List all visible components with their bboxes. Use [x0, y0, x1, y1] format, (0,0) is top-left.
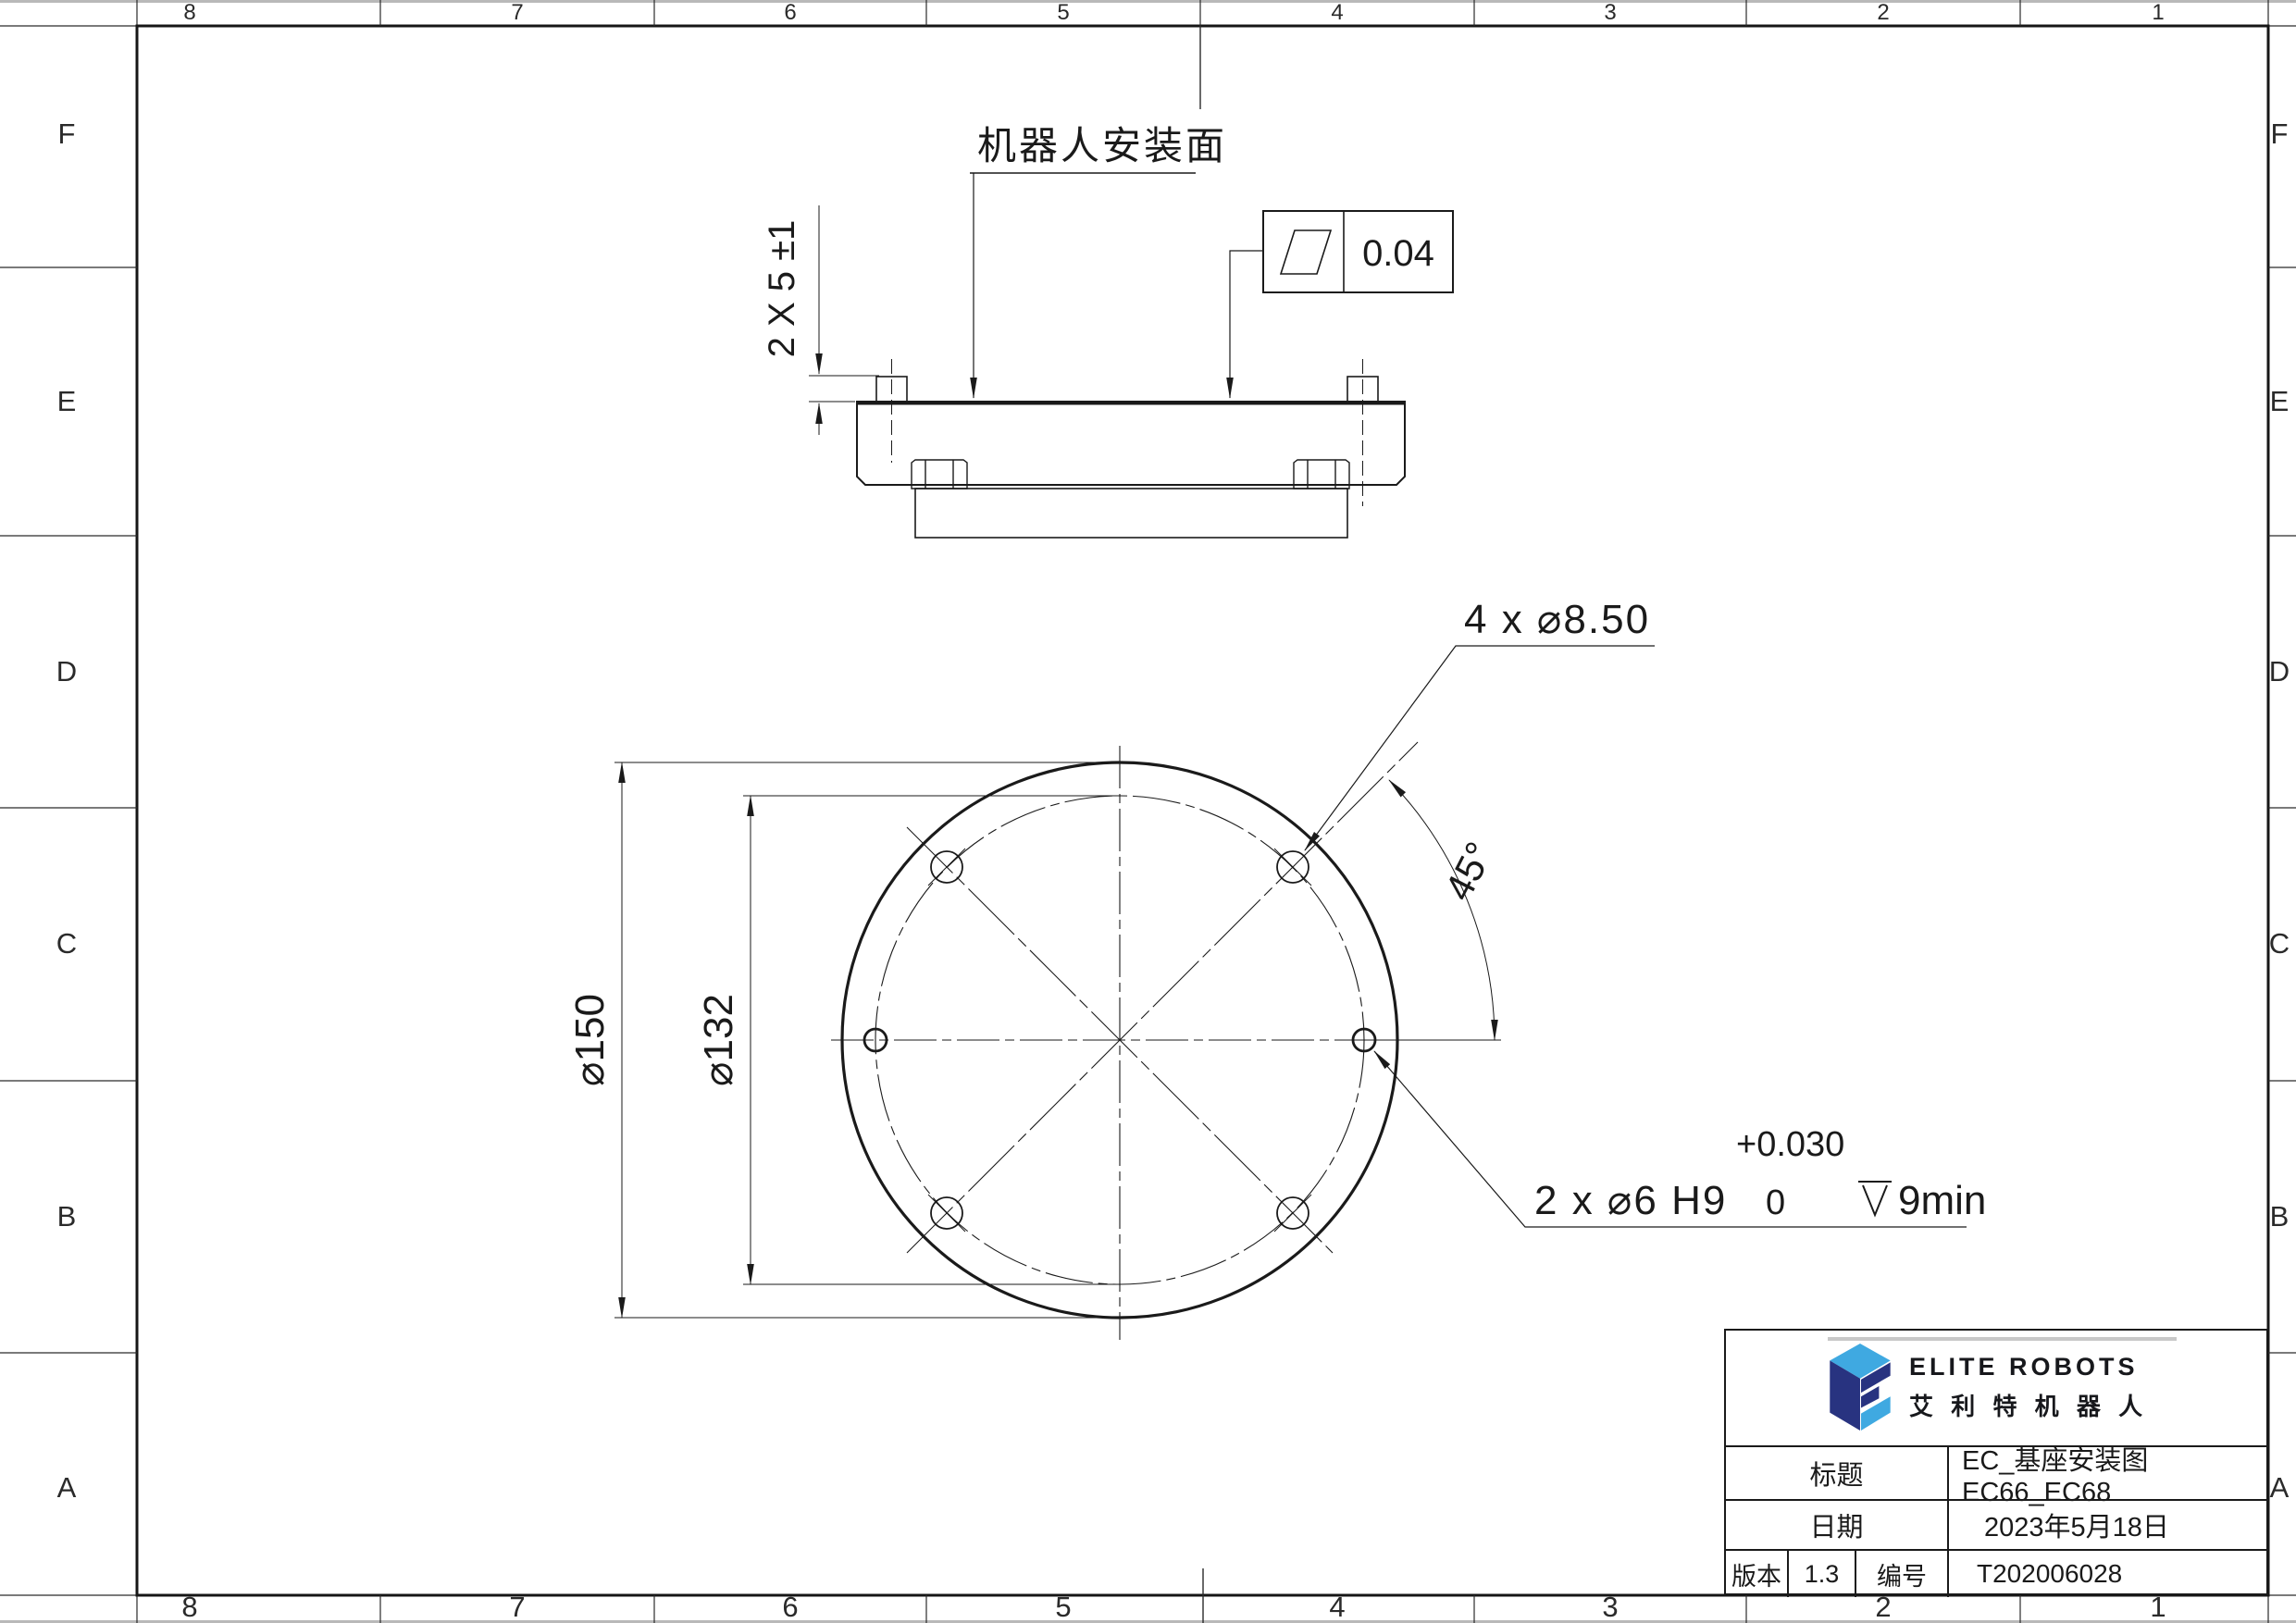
bolt-hole-callout: 4 x ⌀8.50 — [1305, 597, 1655, 850]
zone-letter-left-C: C — [56, 927, 77, 960]
zone-letter-left-E: E — [57, 385, 77, 418]
plan-view — [831, 742, 1430, 1340]
zone-number-top-6: 6 — [784, 0, 796, 26]
zone-number-bottom-4: 4 — [1329, 1591, 1345, 1623]
zone-letter-right-C: C — [2269, 927, 2290, 960]
title-label: 标题 — [1726, 1447, 1947, 1499]
bolt-circle-text: ⌀132 — [696, 994, 741, 1086]
mounting-surface-callout: 机器人安装面 — [970, 124, 1227, 398]
zone-number-bottom-7: 7 — [509, 1591, 525, 1623]
zone-dividers-left — [0, 267, 137, 1353]
title-row: 标题 EC_基座安装图 EC66_EC68 — [1726, 1445, 2266, 1499]
zone-letter-right-A: A — [2270, 1471, 2290, 1505]
pin-height-text: 2 X 5 ±1 — [762, 220, 802, 358]
title-block-logo-cell: ELITE ROBOTS 艾 利 特 机 器 人 — [1726, 1331, 2266, 1445]
dowel-hole-text: 2 x ⌀6 H9 — [1534, 1178, 1727, 1223]
zone-number-bottom-8: 8 — [181, 1591, 197, 1623]
zone-dividers-bottom — [380, 1595, 2020, 1623]
flatness-value: 0.04 — [1362, 233, 1434, 274]
zone-number-top-7: 7 — [511, 0, 523, 26]
zone-number-bottom-5: 5 — [1055, 1591, 1071, 1623]
number-label: 编号 — [1855, 1551, 1947, 1597]
zone-number-top-8: 8 — [183, 0, 195, 26]
depth-icon — [1858, 1182, 1892, 1215]
zone-letter-right-D: D — [2269, 655, 2290, 688]
mounting-surface-label: 机器人安装面 — [977, 124, 1227, 167]
elite-robots-logo-icon — [1830, 1344, 1893, 1431]
flatness-symbol — [1281, 230, 1331, 274]
zone-number-bottom-3: 3 — [1602, 1591, 1618, 1623]
dowel-tol-lower: 0 — [1766, 1183, 1785, 1222]
zone-letter-right-B: B — [2270, 1200, 2290, 1233]
dowel-hole-callout: 2 x ⌀6 H9 +0.030 0 9min — [1374, 1051, 1986, 1227]
dowel-tol-upper: +0.030 — [1736, 1125, 1844, 1164]
number-value: T202006028 — [1947, 1551, 2270, 1597]
dowel-depth-text: 9min — [1898, 1178, 1986, 1223]
centerline-diag-ne — [907, 742, 1418, 1253]
pedestal — [915, 489, 1347, 538]
zone-letter-right-F: F — [2271, 118, 2289, 151]
title-block: ELITE ROBOTS 艾 利 特 机 器 人 标题 EC_基座安装图 EC6… — [1724, 1329, 2268, 1595]
side-view — [857, 359, 1405, 538]
zone-number-top-3: 3 — [1604, 0, 1616, 26]
zone-dividers-right — [2268, 267, 2296, 1353]
zone-number-top-4: 4 — [1331, 0, 1343, 26]
zone-number-top-2: 2 — [1877, 0, 1889, 26]
date-label: 日期 — [1726, 1501, 1947, 1549]
version-row: 版本 1.3 编号 T202006028 — [1726, 1549, 2266, 1597]
date-value: 2023年5月18日 — [1947, 1501, 2270, 1549]
version-label: 版本 — [1726, 1551, 1787, 1597]
zone-letter-left-A: A — [57, 1471, 77, 1505]
pin-height-dimension: 2 X 5 ±1 — [762, 205, 879, 435]
title-value: EC_基座安装图 EC66_EC68 — [1947, 1447, 2270, 1499]
zone-number-top-5: 5 — [1057, 0, 1069, 26]
zone-number-top-1: 1 — [2152, 0, 2164, 26]
zone-dividers-top — [380, 0, 2020, 26]
zone-letter-left-F: F — [58, 118, 76, 151]
zone-letter-right-E: E — [2270, 385, 2290, 418]
brand-name-en: ELITE ROBOTS — [1909, 1353, 2148, 1381]
version-value: 1.3 — [1787, 1551, 1855, 1597]
zone-letter-left-B: B — [57, 1200, 77, 1233]
logo-accent-line — [1828, 1337, 2177, 1341]
zone-letter-left-D: D — [56, 655, 77, 688]
flatness-fcf: 0.04 — [1230, 211, 1453, 398]
brand-name-cn: 艾 利 特 机 器 人 — [1909, 1388, 2148, 1422]
drawing-sheet: 机器人安装面 0.04 2 X 5 ±1 — [0, 0, 2296, 1623]
zone-number-bottom-6: 6 — [782, 1591, 798, 1623]
angle-text: 45° — [1436, 835, 1502, 907]
date-row: 日期 2023年5月18日 — [1726, 1499, 2266, 1549]
bolt-hole-text: 4 x ⌀8.50 — [1464, 597, 1650, 642]
outer-dia-text: ⌀150 — [567, 994, 613, 1086]
flange-body — [857, 402, 1405, 485]
